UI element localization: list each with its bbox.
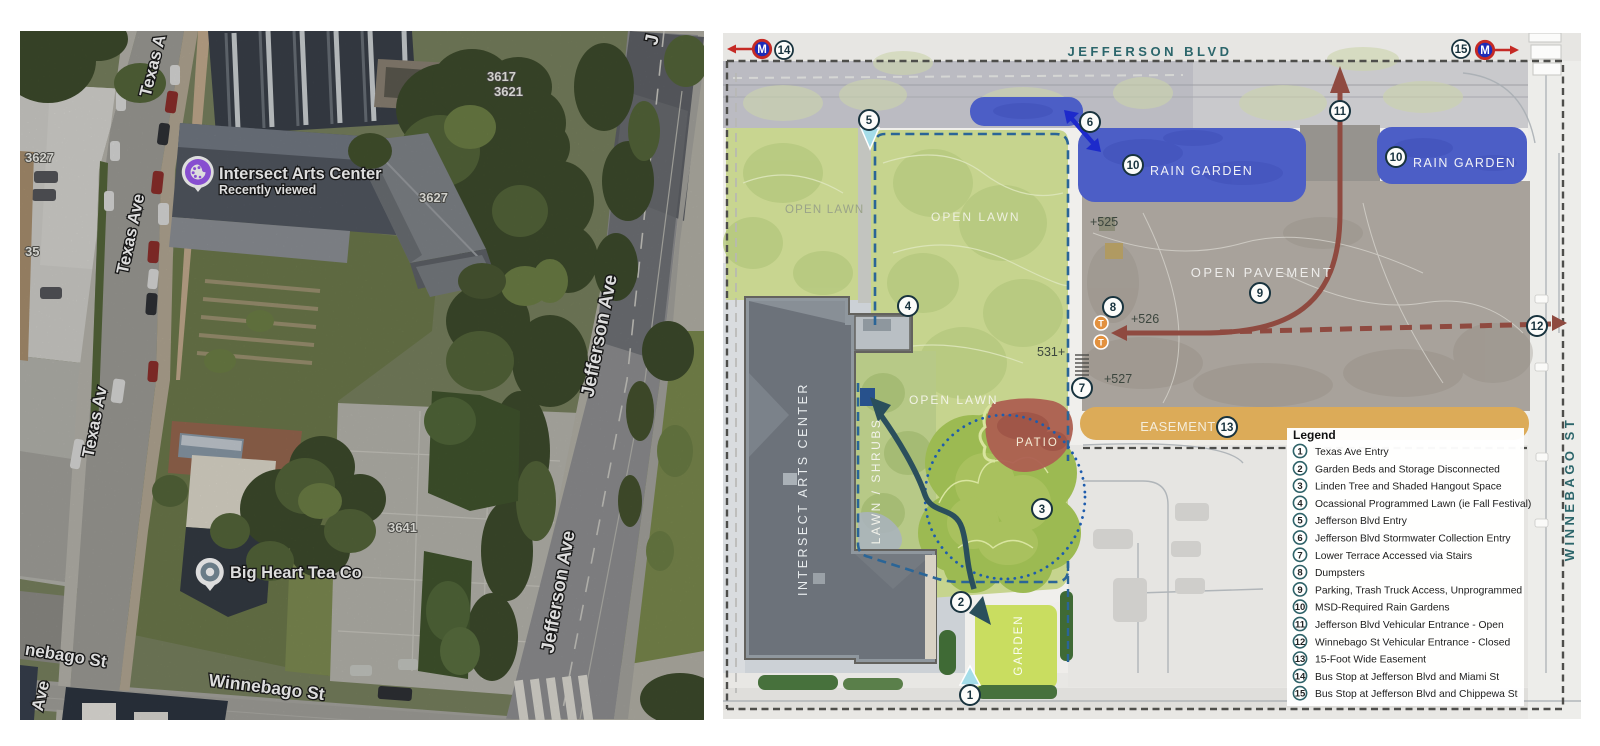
- svg-text:T: T: [1098, 338, 1104, 348]
- svg-text:15-Foot Wide Easement: 15-Foot Wide Easement: [1315, 655, 1426, 666]
- svg-text:8: 8: [1297, 568, 1302, 579]
- svg-text:14: 14: [778, 45, 791, 57]
- svg-text:EASEMENT: EASEMENT: [1140, 419, 1216, 434]
- svg-text:9: 9: [1257, 288, 1263, 300]
- svg-text:3: 3: [1297, 481, 1302, 492]
- svg-text:15: 15: [1455, 44, 1468, 56]
- svg-text:3: 3: [1039, 504, 1045, 516]
- svg-text:9: 9: [1297, 585, 1302, 596]
- svg-text:10: 10: [1390, 152, 1403, 164]
- svg-text:+525: +525: [1090, 215, 1118, 229]
- svg-text:+526: +526: [1131, 312, 1159, 326]
- svg-text:11: 11: [1295, 620, 1306, 631]
- svg-text:2: 2: [1297, 464, 1302, 475]
- svg-text:13: 13: [1221, 422, 1234, 434]
- svg-text:13: 13: [1295, 654, 1306, 665]
- svg-text:4: 4: [905, 301, 912, 313]
- svg-text:6: 6: [1087, 117, 1093, 129]
- svg-text:12: 12: [1295, 637, 1306, 648]
- svg-text:5: 5: [1297, 516, 1303, 527]
- svg-text:Winnebago St Vehicular Entranc: Winnebago St Vehicular Entrance - Closed: [1315, 637, 1510, 648]
- svg-text:LAWN / SHRUBS: LAWN / SHRUBS: [869, 418, 883, 545]
- svg-text:Lower Terrace Accessed via Sta: Lower Terrace Accessed via Stairs: [1315, 551, 1472, 562]
- svg-text:8: 8: [1110, 302, 1117, 314]
- svg-text:Jefferson Blvd Stormwater Coll: Jefferson Blvd Stormwater Collection Ent…: [1315, 534, 1511, 545]
- svg-text:7: 7: [1297, 550, 1302, 561]
- svg-text:MSD-Required Rain Gardens: MSD-Required Rain Gardens: [1315, 603, 1450, 614]
- svg-text:T: T: [1098, 319, 1104, 329]
- svg-text:10: 10: [1127, 160, 1140, 172]
- svg-text:JEFFERSON BLVD: JEFFERSON BLVD: [1067, 44, 1232, 59]
- svg-text:Bus Stop at Jefferson Blvd and: Bus Stop at Jefferson Blvd and Miami St: [1315, 672, 1499, 683]
- svg-text:RAIN GARDEN: RAIN GARDEN: [1413, 156, 1516, 170]
- svg-text:Jefferson Blvd Entry: Jefferson Blvd Entry: [1315, 516, 1408, 527]
- svg-text:PATIO: PATIO: [1016, 437, 1059, 449]
- svg-text:WINNEBAGO ST: WINNEBAGO ST: [1562, 417, 1577, 562]
- svg-text:GARDEN: GARDEN: [1013, 614, 1025, 675]
- svg-text:M: M: [1480, 45, 1490, 57]
- svg-text:OPEN LAWN: OPEN LAWN: [931, 210, 1021, 224]
- svg-text:531+: 531+: [1037, 345, 1065, 359]
- svg-text:OPEN LAWN: OPEN LAWN: [785, 204, 864, 216]
- svg-text:+527: +527: [1104, 372, 1132, 386]
- svg-text:Bus Stop at Jefferson Blvd and: Bus Stop at Jefferson Blvd and Chippewa …: [1315, 689, 1518, 700]
- svg-text:7: 7: [1079, 383, 1085, 395]
- svg-text:Parking, Trash Truck Access, U: Parking, Trash Truck Access, Unprogramme…: [1315, 585, 1522, 596]
- svg-text:1: 1: [967, 690, 974, 702]
- svg-text:15: 15: [1295, 689, 1306, 700]
- svg-text:2: 2: [958, 597, 964, 609]
- svg-text:4: 4: [1297, 498, 1303, 509]
- svg-text:Texas Ave Entry: Texas Ave Entry: [1315, 447, 1389, 458]
- svg-text:Jefferson Blvd Vehicular Entra: Jefferson Blvd Vehicular Entrance - Open: [1315, 620, 1504, 631]
- svg-text:11: 11: [1334, 106, 1347, 118]
- svg-text:14: 14: [1295, 671, 1306, 682]
- svg-text:Linden Tree and Shaded Hangout: Linden Tree and Shaded Hangout Space: [1315, 482, 1502, 493]
- svg-text:1: 1: [1297, 447, 1303, 458]
- svg-text:OPEN PAVEMENT: OPEN PAVEMENT: [1191, 265, 1334, 280]
- svg-text:M: M: [757, 44, 767, 56]
- svg-text:Garden Beds and Storage Discon: Garden Beds and Storage Disconnected: [1315, 464, 1500, 475]
- svg-text:RAIN GARDEN: RAIN GARDEN: [1150, 164, 1253, 178]
- svg-text:OPEN LAWN: OPEN LAWN: [909, 393, 999, 407]
- svg-text:Dumpsters: Dumpsters: [1315, 568, 1365, 579]
- svg-text:INTERSECT ARTS CENTER: INTERSECT ARTS CENTER: [796, 382, 810, 596]
- svg-text:Ocassional Programmed Lawn (ie: Ocassional Programmed Lawn (ie Fall Fest…: [1315, 499, 1531, 510]
- svg-text:Legend: Legend: [1293, 428, 1336, 442]
- svg-text:12: 12: [1531, 321, 1544, 333]
- svg-text:5: 5: [866, 115, 873, 127]
- svg-text:6: 6: [1297, 533, 1302, 544]
- svg-text:10: 10: [1295, 602, 1306, 613]
